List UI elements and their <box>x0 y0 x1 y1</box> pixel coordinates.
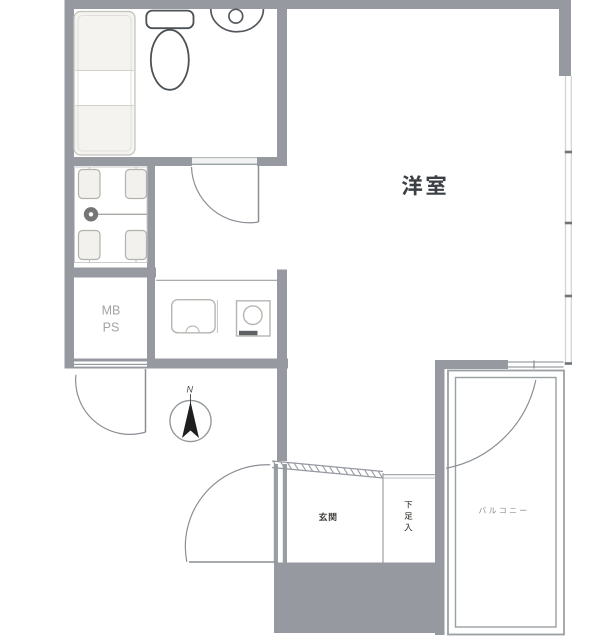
svg-text:MB: MB <box>102 304 121 318</box>
svg-text:N: N <box>187 385 194 395</box>
svg-text:PS: PS <box>103 321 120 335</box>
